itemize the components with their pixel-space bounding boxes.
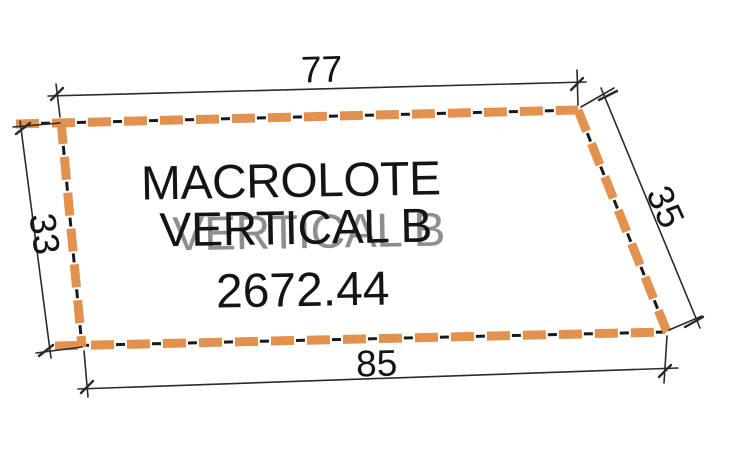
dim-top-extension-left: [56, 84, 60, 117]
parcel-diagram: 77 35 85 33 VERTICAL B MACROLOTE VERTICA…: [0, 0, 741, 473]
dim-bottom-extension-right: [664, 336, 667, 383]
dim-label-top: 77: [301, 48, 343, 90]
dim-top-extension-right: [577, 70, 578, 105]
dim-right-extension-top: [581, 88, 614, 107]
dim-label-right: 35: [638, 180, 692, 234]
dim-label-left: 33: [21, 211, 67, 257]
parcel-area-value: 2672.44: [216, 262, 390, 318]
parcel-diagram-canvas: 77 35 85 33 VERTICAL B MACROLOTE VERTICA…: [0, 0, 741, 473]
parcel-name-line2: VERTICAL B: [159, 200, 432, 258]
parcel-labels: MACROLOTE VERTICAL B 2672.44: [141, 152, 441, 318]
dim-label-bottom: 85: [356, 342, 398, 384]
